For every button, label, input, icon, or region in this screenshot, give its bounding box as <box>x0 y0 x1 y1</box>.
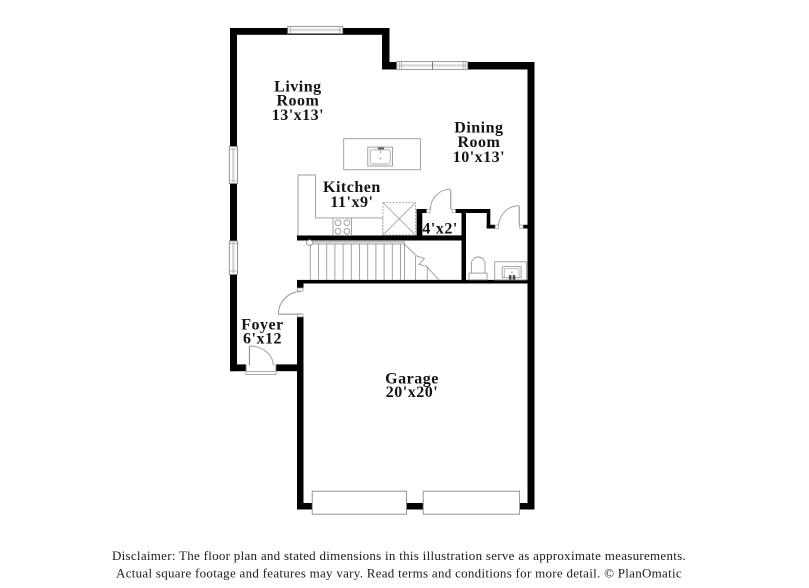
svg-text:20'x20': 20'x20' <box>386 384 438 401</box>
svg-text:Disclaimer: The floor plan and: Disclaimer: The floor plan and stated di… <box>112 548 686 563</box>
svg-text:6'x12: 6'x12 <box>243 330 282 347</box>
svg-text:10'x13': 10'x13' <box>453 149 505 166</box>
svg-text:13'x13': 13'x13' <box>272 107 324 124</box>
svg-text:Actual square footage and feat: Actual square footage and features may v… <box>116 566 682 581</box>
svg-text:4'x2': 4'x2' <box>422 221 457 238</box>
svg-text:11'x9': 11'x9' <box>330 194 373 211</box>
